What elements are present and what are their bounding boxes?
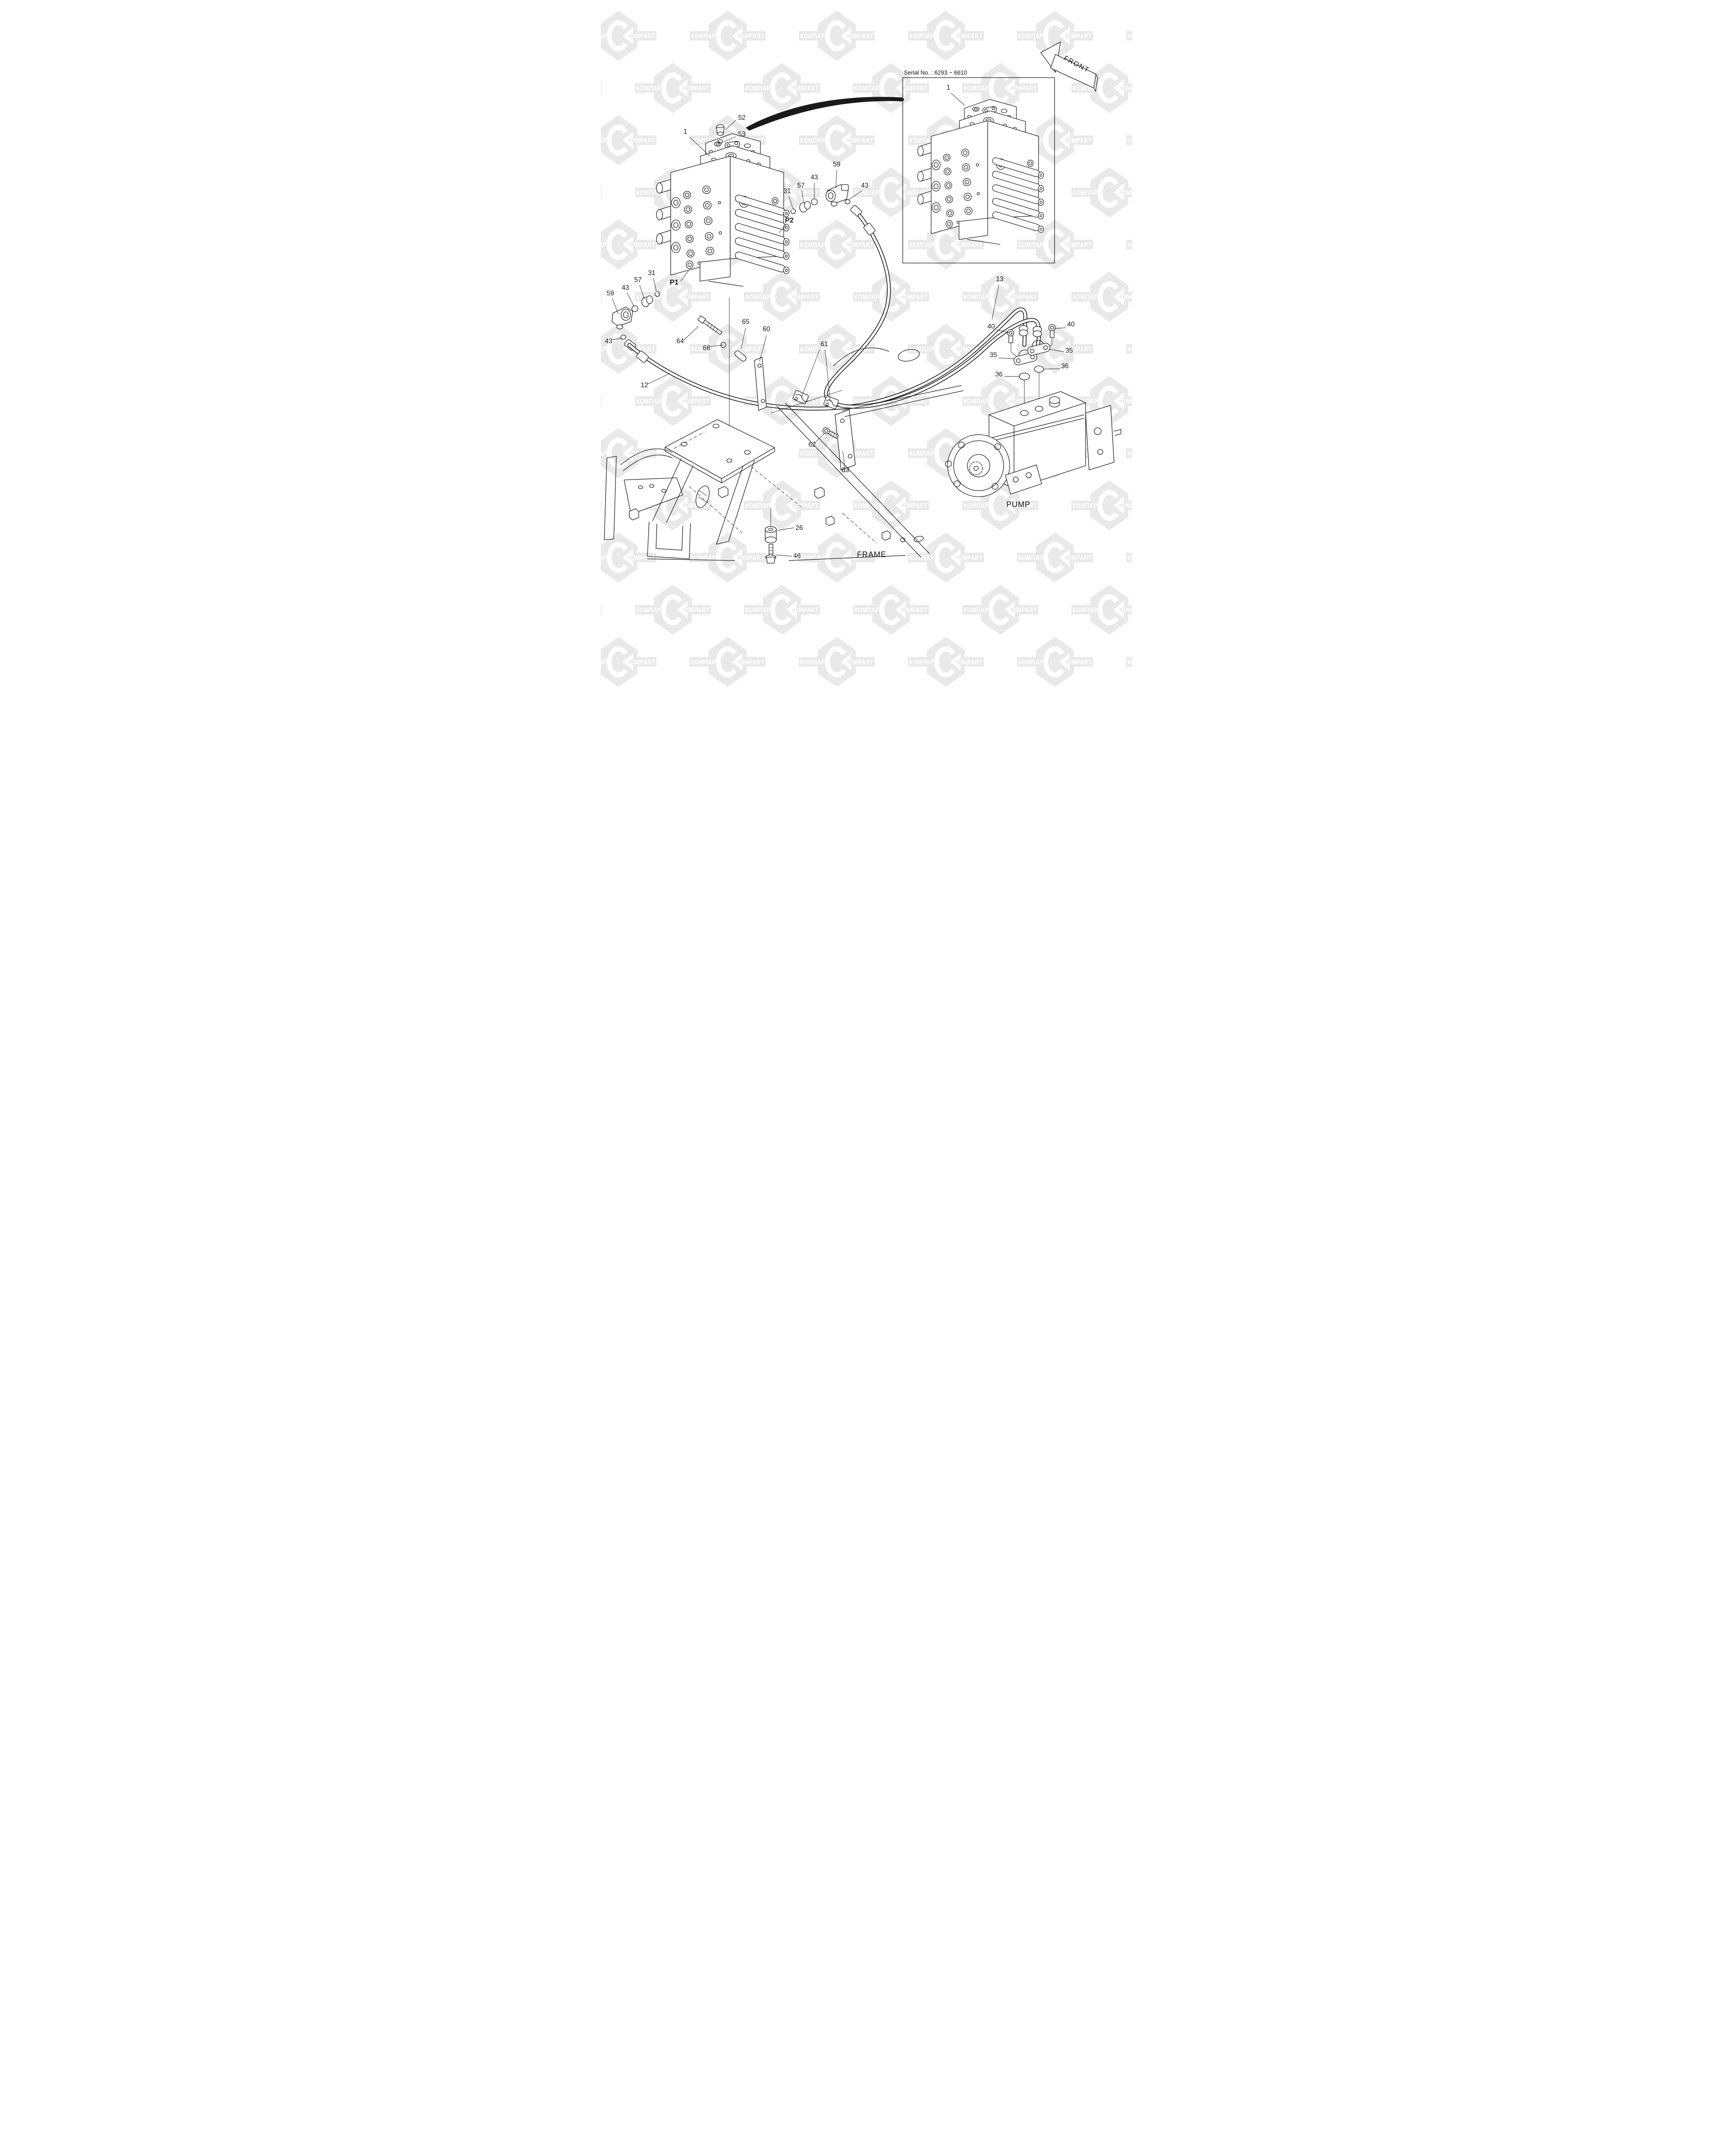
- watermark-motif: [601, 376, 602, 426]
- watermark-word-latin: COMPART: [845, 659, 873, 666]
- watermark-word-cyrillic: КОМПАРТ: [601, 659, 610, 666]
- watermark-word-latin: COMPART: [681, 85, 710, 92]
- watermark-word-latin: COMPART: [627, 659, 655, 666]
- watermark-word-cyrillic: КОМПАРТ: [909, 555, 938, 562]
- watermark-word-cyrillic: КОМПАРТ: [1073, 294, 1101, 301]
- watermark-word-cyrillic: КОМПАРТ: [1018, 241, 1047, 249]
- watermark-word-latin: COMPART: [1118, 294, 1132, 301]
- part-label-43: 43: [861, 182, 868, 189]
- watermark-word-latin: COMPART: [790, 294, 819, 301]
- watermark-word-cyrillic: КОМПАРТ: [800, 450, 829, 458]
- part-label-53: 53: [738, 131, 745, 138]
- pump-caption: PUMP: [1006, 500, 1030, 509]
- watermark-word-latin: COMPART: [1008, 607, 1037, 614]
- watermark-word-latin: COMPART: [790, 607, 819, 614]
- watermark-word-cyrillic: КОМПАРТ: [1127, 137, 1132, 144]
- part-label-36: 36: [995, 371, 1002, 378]
- watermark-word-latin: COMPART: [736, 33, 764, 40]
- part-label-1: 1: [947, 84, 951, 91]
- part-label-43: 43: [810, 174, 818, 181]
- watermark-word-latin: COMPART: [1118, 502, 1132, 510]
- watermark-word-latin: COMPART: [790, 502, 819, 510]
- watermark-word-cyrillic: КОМПАРТ: [1018, 659, 1047, 666]
- watermark-word-cyrillic: КОМПАРТ: [854, 294, 883, 301]
- watermark-word-cyrillic: КОМПАРТ: [909, 659, 938, 666]
- part-label-57: 57: [634, 276, 641, 284]
- part-label-66: 66: [703, 345, 710, 352]
- watermark-word-cyrillic: КОМПАРТ: [909, 450, 938, 458]
- port-p1-label: P1: [670, 279, 678, 286]
- inset-control-valve: [918, 100, 1044, 244]
- watermark-word-latin: COMPART: [899, 607, 928, 614]
- watermark-word-latin: COMPART: [1063, 659, 1092, 666]
- part-label-12: 12: [640, 382, 648, 389]
- watermark-word-cyrillic: КОМПАРТ: [691, 33, 719, 40]
- watermark-word-cyrillic: КОМПАРТ: [745, 607, 774, 614]
- watermark-word-cyrillic: КОМПАРТ: [964, 294, 992, 301]
- watermark-word-latin: COMPART: [954, 555, 983, 562]
- part-label-26: 26: [795, 524, 803, 532]
- part-label-59: 59: [833, 161, 840, 168]
- watermark-word-latin: COMPART: [627, 33, 655, 40]
- watermark-word-cyrillic: КОМПАРТ: [1018, 33, 1047, 40]
- watermark-word-cyrillic: КОМПАРТ: [601, 33, 610, 40]
- watermark-word-cyrillic: КОМПАРТ: [636, 607, 665, 614]
- watermark-word-cyrillic: КОМПАРТ: [854, 85, 883, 92]
- watermark-word-latin: COMPART: [845, 137, 873, 144]
- part-label-1: 1: [684, 128, 688, 135]
- watermark-word-cyrillic: КОМПАРТ: [800, 555, 829, 562]
- watermark-word-cyrillic: КОМПАРТ: [636, 85, 665, 92]
- watermark-word-latin: COMPART: [1063, 33, 1092, 40]
- part-label-52: 52: [738, 114, 745, 122]
- watermark-word-latin: COMPART: [1008, 85, 1037, 92]
- watermark-word-latin: COMPART: [899, 502, 928, 510]
- watermark-motif: [601, 272, 602, 322]
- watermark-word-cyrillic: КОМПАРТ: [601, 555, 610, 562]
- watermark-word-cyrillic: КОМПАРТ: [745, 85, 774, 92]
- leader-line: [684, 326, 698, 340]
- watermark-word-cyrillic: КОМПАРТ: [964, 502, 992, 510]
- watermark-word-cyrillic: КОМПАРТ: [1073, 502, 1101, 510]
- watermark-motif: [601, 480, 602, 530]
- watermark-word-cyrillic: КОМПАРТ: [601, 241, 610, 249]
- watermark-motif: [601, 167, 602, 217]
- part-label-61: 61: [820, 341, 828, 348]
- watermark-motif: [601, 585, 602, 635]
- watermark-word-cyrillic: КОМПАРТ: [1127, 555, 1132, 562]
- part-label-31: 31: [648, 269, 655, 277]
- part-label-36: 36: [1061, 363, 1068, 370]
- watermark-motif: [601, 63, 602, 113]
- watermark-word-latin: COMPART: [1063, 241, 1092, 249]
- part-label-59: 59: [606, 290, 614, 297]
- watermark-word-cyrillic: КОМПАРТ: [800, 241, 829, 249]
- watermark-word-cyrillic: КОМПАРТ: [601, 346, 610, 353]
- watermark-word-latin: COMPART: [627, 450, 655, 458]
- watermark-word-latin: COMPART: [681, 398, 710, 405]
- port-p2-label: P2: [785, 216, 794, 224]
- watermark-word-cyrillic: КОМПАРТ: [1018, 555, 1047, 562]
- watermark-word-cyrillic: КОМПАРТ: [1127, 346, 1132, 353]
- watermark-word-latin: COMPART: [1118, 189, 1132, 197]
- watermark-word-latin: COMPART: [790, 85, 819, 92]
- leader-line: [612, 298, 618, 314]
- watermark-word-latin: COMPART: [627, 241, 655, 249]
- watermark-word-cyrillic: КОМПАРТ: [854, 607, 883, 614]
- part-label-35: 35: [1065, 347, 1073, 354]
- watermark-word-cyrillic: КОМПАРТ: [1127, 659, 1132, 666]
- watermark-word-latin: COMPART: [1063, 137, 1092, 144]
- p1-leader-line: [681, 271, 688, 281]
- watermark-word-cyrillic: КОМПАРТ: [691, 659, 719, 666]
- watermark-word-latin: COMPART: [627, 137, 655, 144]
- watermark-word-latin: COMPART: [736, 659, 764, 666]
- watermark-word-latin: COMPART: [1118, 85, 1132, 92]
- part-label-64: 64: [676, 338, 684, 345]
- part-label-62: 62: [808, 441, 816, 448]
- parts-diagram-page: КОМПАРТCOMPARTКОМПАРТCOMPARTКОМПАРТCOMPA…: [601, 0, 1132, 687]
- frame-caption: FRAME: [857, 550, 886, 559]
- watermark-word-latin: COMPART: [954, 33, 983, 40]
- watermark-word-cyrillic: КОМПАРТ: [800, 659, 829, 666]
- leader-line: [998, 358, 1014, 359]
- watermark-word-cyrillic: КОМПАРТ: [601, 450, 610, 458]
- main-control-valve: [656, 134, 789, 286]
- watermark-word-cyrillic: КОМПАРТ: [1073, 189, 1101, 197]
- watermark-word-cyrillic: КОМПАРТ: [601, 137, 610, 144]
- diagram-canvas: КОМПАРТCOMPARTКОМПАРТCOMPARTКОМПАРТCOMPA…: [601, 0, 1132, 687]
- part-label-43: 43: [605, 338, 612, 345]
- watermark-word-latin: COMPART: [736, 555, 764, 562]
- part-label-63: 63: [841, 467, 849, 474]
- part-label-43: 43: [622, 284, 629, 291]
- watermark-word-cyrillic: КОМПАРТ: [1127, 450, 1132, 458]
- leader-line: [801, 349, 820, 398]
- part-label-65: 65: [742, 318, 749, 326]
- leader-line: [951, 93, 964, 105]
- watermark-word-cyrillic: КОМПАРТ: [745, 502, 774, 510]
- part-label-46: 46: [793, 552, 801, 560]
- watermark-word-cyrillic: КОМПАРТ: [1127, 241, 1132, 249]
- watermark-word-cyrillic: КОМПАРТ: [691, 555, 719, 562]
- watermark-word-latin: COMPART: [954, 241, 983, 249]
- leader-line: [776, 555, 792, 556]
- watermark-word-cyrillic: КОМПАРТ: [1127, 33, 1132, 40]
- watermark-word-cyrillic: КОМПАРТ: [1073, 607, 1101, 614]
- watermark-word-latin: COMPART: [845, 33, 873, 40]
- watermark-pattern: КОМПАРТCOMPARTКОМПАРТCOMPARTКОМПАРТCOMPA…: [601, 11, 1132, 687]
- watermark-word-cyrillic: КОМПАРТ: [909, 241, 938, 249]
- watermark-word-cyrillic: КОМПАРТ: [964, 85, 992, 92]
- part-label-60: 60: [763, 326, 770, 333]
- part-label-57: 57: [797, 182, 804, 189]
- part-label-35: 35: [989, 351, 997, 359]
- watermark-word-latin: COMPART: [899, 85, 928, 92]
- watermark-word-latin: COMPART: [954, 659, 983, 666]
- watermark-word-cyrillic: КОМПАРТ: [909, 33, 938, 40]
- leader-line: [836, 170, 837, 188]
- part-label-40: 40: [1067, 321, 1075, 328]
- watermark-word-latin: COMPART: [1063, 555, 1092, 562]
- watermark-word-latin: COMPART: [845, 241, 873, 249]
- watermark-word-latin: COMPART: [899, 294, 928, 301]
- part-label-13: 13: [996, 276, 1003, 283]
- watermark-word-cyrillic: КОМПАРТ: [745, 294, 774, 301]
- watermark-word-cyrillic: КОМПАРТ: [1073, 85, 1101, 92]
- leader-line: [627, 293, 634, 307]
- part-label-31: 31: [783, 188, 791, 195]
- watermark-word-cyrillic: КОМПАРТ: [636, 398, 665, 405]
- watermark-word-latin: COMPART: [1008, 294, 1037, 301]
- watermark-word-cyrillic: КОМПАРТ: [964, 398, 992, 405]
- watermark-word-latin: COMPART: [1118, 398, 1132, 405]
- watermark-word-cyrillic: КОМПАРТ: [800, 137, 829, 144]
- watermark-word-latin: COMPART: [681, 294, 710, 301]
- watermark-word-latin: COMPART: [627, 555, 655, 562]
- watermark-word-cyrillic: КОМПАРТ: [800, 33, 829, 40]
- watermark-word-latin: COMPART: [1118, 607, 1132, 614]
- serial-number-label: Serial No. : 6293 ~ 6610: [904, 69, 967, 76]
- watermark-word-cyrillic: КОМПАРТ: [964, 607, 992, 614]
- part-label-40: 40: [987, 323, 995, 330]
- watermark-word-cyrillic: КОМПАРТ: [854, 502, 883, 510]
- watermark-word-latin: COMPART: [681, 607, 710, 614]
